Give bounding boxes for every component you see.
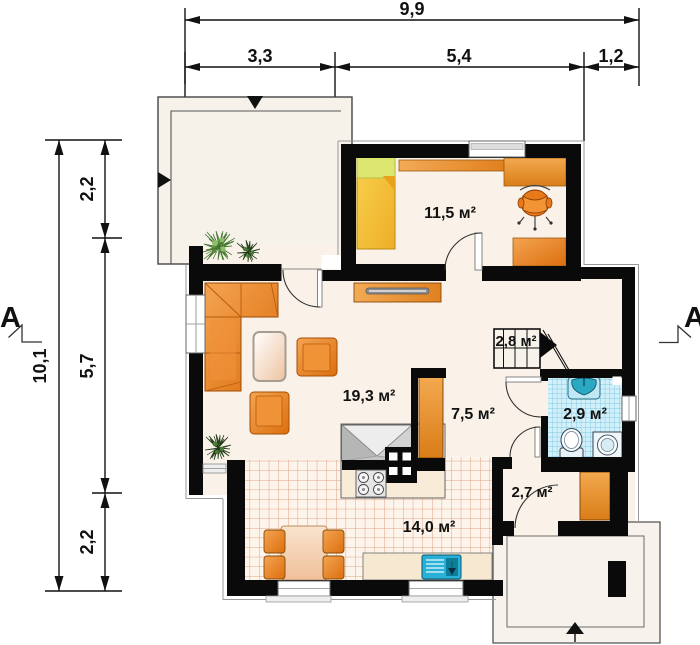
svg-text:2,8 м²: 2,8 м²: [495, 333, 536, 350]
svg-text:5,4: 5,4: [446, 46, 471, 66]
svg-text:11,5 м²: 11,5 м²: [424, 205, 476, 222]
svg-text:9,9: 9,9: [399, 0, 424, 19]
svg-text:2,9 м²: 2,9 м²: [563, 406, 607, 423]
svg-text:1,2: 1,2: [598, 46, 623, 66]
svg-text:3,3: 3,3: [247, 46, 272, 66]
svg-text:5,7: 5,7: [77, 353, 97, 378]
svg-text:7,5 м²: 7,5 м²: [451, 406, 495, 423]
svg-text:2,2: 2,2: [77, 529, 97, 554]
svg-text:10,1: 10,1: [30, 348, 50, 383]
svg-text:A: A: [684, 302, 700, 334]
svg-text:14,0 м²: 14,0 м²: [403, 519, 456, 536]
svg-text:19,3 м²: 19,3 м²: [343, 388, 396, 405]
svg-text:2,2: 2,2: [77, 176, 97, 201]
svg-text:2,7 м²: 2,7 м²: [511, 484, 552, 501]
